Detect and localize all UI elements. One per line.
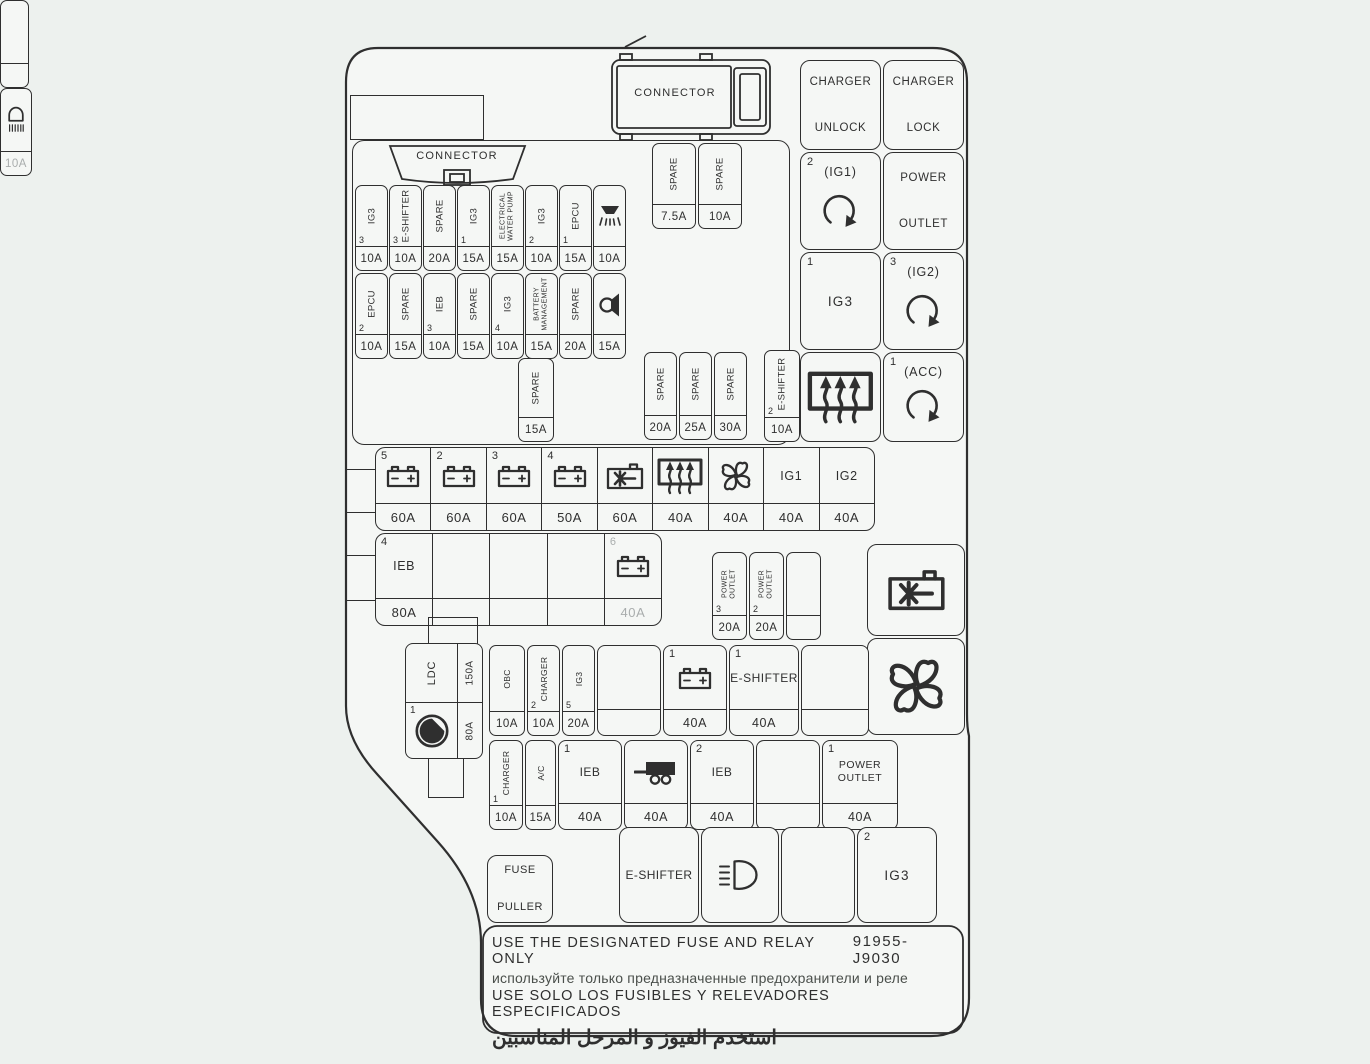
fuse-a-c: A/C15A [525, 740, 556, 830]
fuse-label-area: SPARE [653, 144, 695, 204]
amp-rating: 40A [823, 803, 897, 829]
amp-rating: 15A [526, 334, 557, 358]
footer-text: USE THE DESIGNATED FUSE AND RELAY ONLY 9… [492, 933, 954, 1050]
fuse-index: 1 [669, 648, 675, 660]
footer-line-es: USE SOLO LOS FUSIBLES Y RELEVADORES ESPE… [492, 988, 954, 1020]
fuse-index: 6 [610, 536, 616, 548]
amp-rating: 15A [390, 334, 421, 358]
amp-rating: 10A [526, 246, 557, 270]
fuse-label: IG1 [780, 469, 802, 483]
amp-rating: 40A [730, 709, 798, 735]
battery-icon [678, 666, 712, 690]
fuse-slot-empty [432, 534, 489, 625]
battery-icon [553, 464, 587, 488]
fuse-ig3: 3IG310A [355, 185, 388, 271]
fuse-label-area: SPARE [715, 353, 746, 415]
top-spare-fuses: SPARE7.5ASPARE10A [652, 143, 742, 229]
fuse-label-area: 4 [542, 448, 596, 503]
fuse-label-area [548, 534, 604, 598]
amp-rating: 15A [458, 246, 489, 270]
fuse-spare: SPARE15A [518, 358, 554, 442]
fuse-interior-lamp: 10A [0, 88, 32, 176]
fuse-index: 1 [735, 648, 741, 660]
obc-fuse-row: OBC10A2CHARGER10A5IG320A140A1E-SHIFTER40… [489, 645, 869, 736]
fuse-label: A/C [536, 765, 546, 780]
fuse-label-area: 1 [664, 646, 726, 709]
fuse-e-shifter: 1E-SHIFTER40A [729, 645, 799, 736]
fuse-label-area: ELECTRICALWATER PUMP [492, 186, 523, 246]
footer-line-ar: استخدم الفيوز و المرحل المناسبين [492, 1025, 954, 1050]
fuse-label: OBC [502, 669, 512, 688]
fuse-label: POWEROUTLET [758, 569, 775, 598]
fan-relay [867, 638, 965, 735]
fuse-index: 5 [381, 450, 387, 462]
relay-rotary-arrow: 3(IG2) [883, 252, 964, 350]
amp-rating: 10A [490, 711, 524, 735]
relay-label: (ACC) [884, 365, 963, 379]
relay-label: E-SHIFTER [620, 828, 698, 922]
fuse-ieb: 3IEB10A [423, 273, 456, 359]
fuse-index: 3 [393, 235, 398, 245]
amp-rating: 10A [492, 334, 523, 358]
ig3-relay: 2IG3 [857, 827, 937, 923]
footer-line-ru: используйте только предназначенные предо… [492, 970, 954, 986]
fuse-label: IG3 [574, 671, 584, 686]
fuse-e-shifter: 2E-SHIFTER10A [764, 350, 800, 442]
fuse-label: SPARE [655, 367, 666, 400]
amp-rating [787, 615, 820, 639]
rotary-arrow-icon [901, 291, 947, 333]
fuse-label: SPARE [715, 157, 726, 190]
amp-rating [548, 598, 604, 625]
fuse-label-area [598, 448, 652, 503]
fuse-label: SPARE [468, 287, 479, 320]
fuse-index: 1 [564, 743, 570, 755]
fuse-index: 2 [359, 323, 364, 333]
label-text: OUTLET [899, 213, 948, 236]
fuse-label-area: SPARE [560, 274, 591, 334]
fuse-label-area: SPARE [458, 274, 489, 334]
fuse-label-area [802, 646, 868, 709]
empty-relay-slot [781, 827, 855, 923]
fuse-label: IEB [393, 559, 415, 573]
lower-fuse-row: 1CHARGER10AA/C15A1IEB40A40A2IEB40A1POWER… [489, 740, 898, 830]
amp-rating: 40A [691, 803, 753, 829]
fuse-label-area: 1EPCU [560, 186, 591, 246]
amp-rating: 10A [490, 805, 522, 829]
fuse-power-outlet: 3POWEROUTLET20A [712, 552, 747, 640]
ldc-cell: LDC [406, 644, 457, 702]
trailer-icon [634, 759, 678, 785]
fuse-label-area: 2POWEROUTLET [750, 553, 783, 615]
amp-rating: 20A [563, 711, 594, 735]
fuse-power-outlet: 1POWEROUTLET40A [822, 740, 898, 830]
fuse-label-area [594, 186, 625, 246]
fuse-charger: 1CHARGER10A [489, 740, 523, 830]
label-text: CHARGER [810, 71, 872, 94]
fuse-label: SPARE [400, 287, 411, 320]
fuse-label-area: 6 [605, 534, 661, 598]
fuse-label: SPARE [570, 287, 581, 320]
fuse-index: 1 [828, 743, 834, 755]
fuse-fan: 40A [708, 448, 763, 530]
fuse-ieb: 4IEB80A [376, 534, 432, 625]
fuse-label: SPARE [531, 371, 542, 404]
rear-defrost-icon [801, 353, 880, 441]
fuse-label-area: SPARE [519, 359, 553, 417]
battery-icon [497, 464, 531, 488]
fuse-rear-defrost: 40A [652, 448, 707, 530]
fuse-ieb: 1IEB40A [558, 740, 622, 830]
fuse-label-area [594, 274, 625, 334]
amp-rating [757, 803, 819, 829]
fuse-label-area: IG1 [764, 448, 818, 503]
fuse-index: 2 [531, 700, 536, 710]
relay-label: CHARGERLOCK [884, 61, 963, 149]
fuse-e-shifter: 3E-SHIFTER10A [389, 185, 422, 271]
fuse-slot-empty [547, 534, 604, 625]
fuse-label-area: 1CHARGER [490, 741, 522, 805]
engine-fuse-box-diagram: CONNECTOR CONNECTOR SPARE7.5ASPARE10A 3I… [0, 0, 1370, 1064]
battery-icon [616, 554, 650, 578]
fuse-ac-compressor: 60A [597, 448, 652, 530]
interior-lamp-icon [4, 104, 28, 136]
fuse-label-area: 5IG3 [563, 646, 594, 711]
amp-rating: 10A [390, 246, 421, 270]
amp-rating: 80A [376, 598, 432, 625]
relay-label: (IG2) [884, 265, 963, 279]
fuse-spare: SPARE7.5A [652, 143, 696, 229]
relay-rotary-arrow: 2(IG1) [800, 152, 881, 250]
fuse-label: E-SHIFTER [400, 190, 411, 243]
fuse-label-area [598, 646, 660, 709]
fuse-label: SPARE [690, 367, 701, 400]
amp-rating: 15A [458, 334, 489, 358]
fuse-battery: 140A [663, 645, 727, 736]
battery-icon [386, 464, 420, 488]
amp-rating: 10A [765, 417, 799, 441]
amp-rating: 40A [820, 503, 874, 530]
amp-rating: 10A [528, 711, 559, 735]
amp-rating: 10A [356, 246, 387, 270]
label-text: POWER [758, 570, 765, 598]
amp-rating: 7.5A [653, 204, 695, 228]
fuse-label: IG3 [468, 208, 479, 224]
amp-rating: 10A [424, 334, 455, 358]
amp-rating: 30A [715, 415, 746, 439]
mid-spare-fuse: SPARE15A [518, 358, 554, 442]
amp-rating: 15A [560, 246, 591, 270]
fuse-label: POWEROUTLET [721, 569, 738, 598]
fuse-puller-label: FUSEPULLER [488, 856, 552, 922]
ldc-cell: 1 [406, 702, 457, 758]
fuse-label: ELECTRICALWATER PUMP [499, 191, 516, 241]
fuse-label-area [625, 741, 687, 803]
amp-rating: 150A [457, 644, 482, 702]
mount-tab [346, 555, 376, 601]
fuse-spare: SPARE15A [389, 273, 422, 359]
fuse-index: 1 [493, 794, 498, 804]
fuse-obc: OBC10A [489, 645, 525, 736]
fuse-trailer: 40A [624, 740, 688, 830]
fuse-index: 4 [381, 536, 387, 548]
label-text: OUTLET [838, 772, 882, 784]
ac-compressor-relay [867, 544, 965, 636]
amp-rating: 20A [424, 246, 455, 270]
mount-tab [346, 469, 376, 513]
fuse-label: POWEROUTLET [838, 759, 882, 784]
fuse-label: CHARGER [539, 656, 549, 701]
fuse-index: 2 [768, 406, 773, 416]
fuse-label-area [490, 534, 546, 598]
fuse-ig3: 2IG310A [525, 185, 558, 271]
ac-compressor-icon [606, 462, 644, 490]
ldc-fuse-block: LDC150A180A [405, 643, 483, 759]
fuse-label-area: 2 [431, 448, 485, 503]
horn-icon [598, 290, 622, 318]
fuse-index: 1 [563, 235, 568, 245]
amp-rating: 40A [664, 709, 726, 735]
fuse-label-area: 2E-SHIFTER [765, 351, 799, 417]
fuse-label: E-SHIFTER [730, 671, 798, 685]
amp-rating: 40A [653, 503, 707, 530]
amp-rating: 60A [431, 503, 485, 530]
fuse-spare: SPARE20A [423, 185, 456, 271]
fuse-index: 5 [566, 700, 571, 710]
fuse-label-area: SPARE [645, 353, 676, 415]
fuse-index: 2 [696, 743, 702, 755]
relay-charger-unlock: CHARGERUNLOCK [800, 60, 881, 150]
fuse-index: 3 [427, 323, 432, 333]
fuse-label-area: BATTERYMANAGEMENT [526, 274, 557, 334]
amp-rating [598, 709, 660, 735]
fuse-label: LDC [426, 661, 438, 685]
relay-label: IG3 [858, 828, 936, 922]
label-text: WATER PUMP [508, 191, 515, 241]
fuse-ig3: 4IG310A [491, 273, 524, 359]
headlight-icon [702, 828, 778, 922]
fuse-label-area [433, 534, 489, 598]
fuse-label-area: 3E-SHIFTER [390, 186, 421, 246]
fuse-slot-empty [0, 0, 1370, 88]
fuse-label: E-SHIFTER [777, 358, 788, 411]
fuse-label: IG3 [366, 208, 377, 224]
amp-rating: 15A [519, 417, 553, 441]
amp-rating: 20A [750, 615, 783, 639]
fuse-label-area: 2CHARGER [528, 646, 559, 711]
fuse-slot-empty [0, 0, 29, 88]
label-text: OUTLET [767, 569, 774, 598]
label-text: ELECTRICAL [499, 193, 506, 239]
fuse-spare: SPARE30A [714, 352, 747, 440]
amp-rating: 40A [709, 503, 763, 530]
fuse-epcu: 2EPCU10A [355, 273, 388, 359]
fan-icon [868, 639, 964, 734]
label-text: CHARGER [893, 71, 955, 94]
fuse-battery: 260A [430, 448, 485, 530]
fuse-ig1: IG140A [763, 448, 818, 530]
label-text: POWER [721, 570, 728, 598]
fuse-electrical-water-pump: ELECTRICALWATER PUMP15A [491, 185, 524, 271]
relay-charger-lock: CHARGERLOCK [883, 60, 964, 150]
mount-tab [428, 758, 464, 798]
fuse-label-area [1, 1, 28, 63]
relay-label: (IG1) [801, 165, 880, 179]
fuse-index: 2 [753, 604, 758, 614]
fuse-label-area: 1POWEROUTLET [823, 741, 897, 803]
label-text: MANAGEMENT [542, 277, 549, 330]
top-connector-label: CONNECTOR [620, 87, 730, 99]
rear-defrost-icon [657, 456, 703, 496]
fuse-label: BATTERYMANAGEMENT [533, 277, 550, 330]
fuse-label-area: IG2 [820, 448, 874, 503]
fuse-label-area: SPARE [699, 144, 741, 204]
fuse-label-area [1, 89, 31, 151]
fuse-label: IG3 [502, 296, 513, 312]
fuse-label-area: 5 [376, 448, 430, 503]
fuse-label: SPARE [725, 367, 736, 400]
label-text: POWER [839, 759, 881, 771]
fuse-label: SPARE [434, 199, 445, 232]
fuse-label: CHARGER [501, 751, 511, 796]
ieb-fuse-row: 4IEB80A640A [375, 533, 662, 626]
fuse-label: SPARE [669, 157, 680, 190]
part-number: 91955-J9030 [853, 933, 954, 967]
fuse-label-area [653, 448, 707, 503]
fuse-label: IEB [580, 765, 601, 779]
fuse-slot-empty [786, 552, 821, 640]
fuse-label-area: 3 [487, 448, 541, 503]
label-text: BATTERY [533, 287, 540, 321]
amp-rating: 15A [526, 805, 555, 829]
relay-label: POWEROUTLET [884, 153, 963, 249]
fuse-label-area: 2IEB [691, 741, 753, 803]
fuse-battery: 450A [541, 448, 596, 530]
fuse-spare: SPARE20A [644, 352, 677, 440]
relay-power-outlet: POWEROUTLET [883, 152, 964, 250]
rotary-arrow-icon [818, 191, 864, 233]
fuse-slot-empty [489, 534, 546, 625]
amp-rating: 40A [625, 803, 687, 829]
amp-rating: 10A [1, 151, 31, 175]
fuse-index: 2 [436, 450, 442, 462]
amp-rating: 10A [356, 334, 387, 358]
amp-rating: 60A [487, 503, 541, 530]
label-text: FUSE [504, 861, 535, 880]
fuse-label-area: 3IG3 [356, 186, 387, 246]
label-text: LOCK [907, 117, 941, 140]
fuse-label-area: A/C [526, 741, 555, 805]
fuse-spare: SPARE20A [559, 273, 592, 359]
fuse-label-area: 1IEB [559, 741, 621, 803]
fuse-index: 3 [716, 604, 721, 614]
fuse-charger: 2CHARGER10A [527, 645, 560, 736]
power-outlet-fuses: 3POWEROUTLET20A2POWEROUTLET20A [712, 552, 821, 640]
fuse-label-area: 4IG3 [492, 274, 523, 334]
fuse-row-1: 3IG310A3E-SHIFTER10ASPARE20A1IG315AELECT… [355, 185, 626, 271]
fan-icon [717, 457, 755, 495]
fuse-index: 2 [529, 235, 534, 245]
amp-rating: 20A [713, 615, 746, 639]
fuse-label-area [787, 553, 820, 615]
fuse-ieb: 2IEB40A [690, 740, 754, 830]
fuse-battery: 640A [604, 534, 661, 625]
blank-plate [350, 95, 484, 140]
fuse-spare: SPARE10A [698, 143, 742, 229]
amp-rating: 40A [764, 503, 818, 530]
fuse-label-area: 2EPCU [356, 274, 387, 334]
fuse-label-area [757, 741, 819, 803]
fuse-label-area: SPARE [390, 274, 421, 334]
e-shifter-relay: E-SHIFTER [619, 827, 699, 923]
fuse-index: 1 [461, 235, 466, 245]
mount-tab [428, 617, 478, 644]
ac-compressor-icon [868, 545, 964, 635]
amp-rating: 60A [376, 503, 430, 530]
fuse-index: 4 [495, 323, 500, 333]
fuse-label-area: 4IEB [376, 534, 432, 598]
fuse-index: 4 [547, 450, 553, 462]
fuse-battery-management: BATTERYMANAGEMENT15A [525, 273, 558, 359]
fuse-ig3: 1IG315A [457, 185, 490, 271]
fuse-label-area: 3POWEROUTLET [713, 553, 746, 615]
amp-rating [490, 598, 546, 625]
fuse-label-area [709, 448, 763, 503]
fuse-ig3: 5IG320A [562, 645, 595, 736]
amp-rating: 15A [594, 334, 625, 358]
fuse-battery: 360A [486, 448, 541, 530]
footer-line-en: USE THE DESIGNATED FUSE AND RELAY ONLY [492, 935, 853, 967]
fuse-slot-empty [597, 645, 661, 736]
fuse-puller: FUSEPULLER [487, 855, 553, 923]
fuse-ig2: IG240A [819, 448, 874, 530]
fuse-label-area: 1E-SHIFTER [730, 646, 798, 709]
fuse-label: EPCU [570, 202, 581, 230]
fuse-label-area: 2IG3 [526, 186, 557, 246]
fuse-row-2: 2EPCU10ASPARE15A3IEB10ASPARE15A4IG310ABA… [355, 273, 626, 359]
amp-rating: 80A [457, 702, 482, 758]
fuse-label-area: SPARE [680, 353, 711, 415]
fuse-index: 3 [359, 235, 364, 245]
amp-rating: 60A [598, 503, 652, 530]
amp-rating: 40A [559, 803, 621, 829]
label-text: POWER [900, 167, 946, 190]
fuse-label: EPCU [366, 290, 377, 318]
label-text: OUTLET [730, 569, 737, 598]
fuse-spare: SPARE25A [679, 352, 712, 440]
battery-icon [442, 464, 476, 488]
fuse-horn: 15A [593, 273, 626, 359]
pump-icon [413, 712, 451, 750]
fuse-label-area: SPARE [424, 186, 455, 246]
amp-rating: 15A [492, 246, 523, 270]
mid-spare-fuses: SPARE20ASPARE25ASPARE30A [644, 352, 747, 440]
fuse-label: IG2 [836, 469, 858, 483]
amp-rating [1, 63, 28, 87]
fuse-label-area: 3IEB [424, 274, 455, 334]
amp-rating [802, 709, 868, 735]
amp-rating: 10A [699, 204, 741, 228]
relay-label: IG3 [801, 253, 880, 349]
label-text: PULLER [497, 898, 543, 917]
high-amp-fuse-row: 560A260A360A450A60A40A40AIG140AIG240A [375, 447, 875, 531]
fuse-slot-empty [801, 645, 869, 736]
fuse-power-outlet: 2POWEROUTLET20A [749, 552, 784, 640]
rotary-arrow-icon [901, 386, 947, 428]
fuse-label-area: 1IG3 [458, 186, 489, 246]
amp-rating: 20A [645, 415, 676, 439]
fuse-label: IEB [434, 296, 445, 312]
